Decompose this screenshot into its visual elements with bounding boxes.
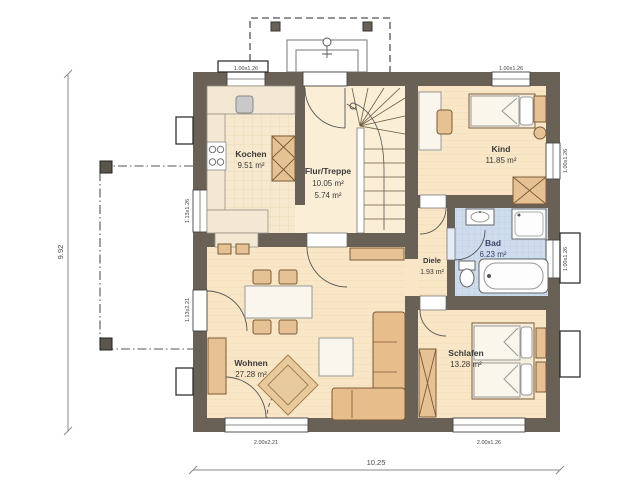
entrance-door-opening xyxy=(303,72,347,86)
kitchen-counter xyxy=(207,210,268,233)
bad-label: Bad xyxy=(485,238,501,248)
wohnen-area: 27.28 m² xyxy=(235,370,267,379)
dining-chair xyxy=(279,320,297,334)
kochen-label: Kochen xyxy=(235,149,266,159)
shutter-box-icon xyxy=(176,117,193,144)
sideboard xyxy=(350,248,404,260)
nightstand xyxy=(536,328,546,358)
coffee-table xyxy=(319,338,353,376)
shutter-box-icon xyxy=(560,331,580,377)
sink-icon xyxy=(466,209,494,225)
opening-kochen-flur xyxy=(295,205,305,233)
wardrobe-icon xyxy=(419,349,436,417)
stove-icon xyxy=(207,142,226,170)
flur-label: Flur/Treppe xyxy=(305,166,352,176)
kind-area: 11.85 m² xyxy=(486,156,517,165)
depth-dimension: 9.92 xyxy=(56,245,65,260)
dining-chair xyxy=(253,320,271,334)
dining-chair xyxy=(253,270,271,284)
dining-table xyxy=(245,286,312,318)
fridge-icon xyxy=(236,96,253,113)
bathtub-icon xyxy=(479,259,548,293)
kind-label: Kind xyxy=(492,144,511,154)
plant-icon xyxy=(534,127,546,139)
canopy-post-icon xyxy=(271,22,280,31)
terrace xyxy=(100,161,193,350)
floorplan-svg: Kochen 9.51 m² Flur/Treppe 10.05 m² 5.74… xyxy=(0,0,640,480)
flur-area1: 10.05 m² xyxy=(312,179,344,188)
kind-window-right-label: 1.00x1.26 xyxy=(563,149,569,173)
terrace-door-opening xyxy=(193,290,207,331)
wohnen-label: Wohnen xyxy=(234,358,267,368)
kochen-area: 9.51 m² xyxy=(237,161,264,170)
wohnen-window-left-label: 1.13x1.26 xyxy=(185,199,191,223)
diele-area: 1.93 m² xyxy=(420,269,444,276)
dimension-left: 9.92 xyxy=(56,70,72,435)
toilet-icon xyxy=(459,261,475,287)
diele-label: Diele xyxy=(423,256,441,265)
bad-window-label: 1.00x1.26 xyxy=(563,247,569,271)
width-dimension: 10.25 xyxy=(367,458,386,467)
lowboard xyxy=(208,338,226,394)
terrace-door-label: 1.13x2.21 xyxy=(185,298,191,322)
bar-stool xyxy=(236,244,249,254)
shutter-box-icon xyxy=(176,368,193,395)
flur-area2: 5.74 m² xyxy=(314,191,341,200)
schlafen-area: 13.28 m² xyxy=(450,360,482,369)
shaft-icon xyxy=(513,177,546,204)
canopy-post-icon xyxy=(363,22,372,31)
schlafen-label: Schlafen xyxy=(448,348,483,358)
wohnen-door-bottom-label: 2.00x2.21 xyxy=(254,440,278,446)
single-bed xyxy=(469,94,535,128)
chimney-shaft-icon xyxy=(272,136,295,181)
dining-chair xyxy=(279,270,297,284)
opening-flur-diele xyxy=(405,259,418,296)
floor-plan-canvas: Kochen 9.51 m² Flur/Treppe 10.05 m² 5.74… xyxy=(0,0,640,480)
desk-chair xyxy=(437,110,452,134)
nightstand xyxy=(534,96,546,122)
bar-stool xyxy=(218,244,231,254)
dimension-bottom: 10.25 xyxy=(189,458,564,474)
kind-window-top-label: 1.00x1.26 xyxy=(499,66,523,72)
bad-area: 6.23 m² xyxy=(479,250,506,259)
kochen-window-label: 1.00x1.26 xyxy=(234,66,258,72)
shower-icon xyxy=(512,209,546,239)
schlafen-window-label: 2.00x1.26 xyxy=(477,440,501,446)
nightstand xyxy=(536,362,546,392)
terrace-post-icon xyxy=(100,161,112,173)
terrace-post-icon xyxy=(100,338,112,350)
